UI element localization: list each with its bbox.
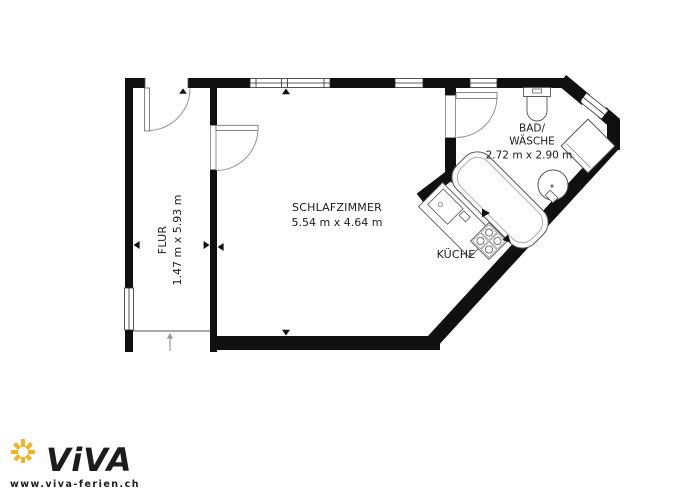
marker-down-bottomwall [282,330,290,336]
logo-wordmark: ViVA [46,441,133,479]
window-top-large [250,79,330,88]
dims-schlafzimmer: 5.54 m x 4.64 m [292,216,383,229]
dims-flur: 1.47 m x 5.93 m [171,195,184,286]
dims-bad: 2.72 m x 2.90 m [486,150,573,162]
marker-right-divider [204,241,210,249]
washing-machine [561,119,615,173]
door-entrance [145,78,190,131]
window-left-wall [125,288,134,330]
marker-left-divider-bedroom [218,243,224,251]
window-top-small [395,79,423,88]
label-schlafzimmer: SCHLAFZIMMER [292,201,382,214]
door-flur-bedroom [211,125,259,170]
label-bad-line1: BAD/ [519,123,545,135]
viva-logo: ViVA www.viva-ferien.ch [10,439,140,490]
flur-entry [133,331,210,351]
marker-left-leftwall [134,241,140,249]
floorplan-page: SCHLAFZIMMER 5.54 m x 4.64 m BAD/ WÄSCHE… [0,0,700,500]
label-kueche: KÜCHE [437,248,476,261]
marker-up-window [282,88,290,94]
label-bad-line2: WÄSCHE [509,135,555,148]
toilet [524,88,551,122]
entry-arrow-head [167,333,173,339]
marker-entrance [179,88,187,93]
floorplan-drawing: SCHLAFZIMMER 5.54 m x 4.64 m BAD/ WÄSCHE… [0,0,700,500]
sunburst-icon [11,439,35,463]
logo-website: www.viva-ferien.ch [10,479,140,490]
label-flur: FLUR [156,226,169,255]
doors [145,78,497,171]
window-bath-top [470,79,497,88]
door-bathroom [446,93,498,138]
window-bevel [580,93,609,119]
